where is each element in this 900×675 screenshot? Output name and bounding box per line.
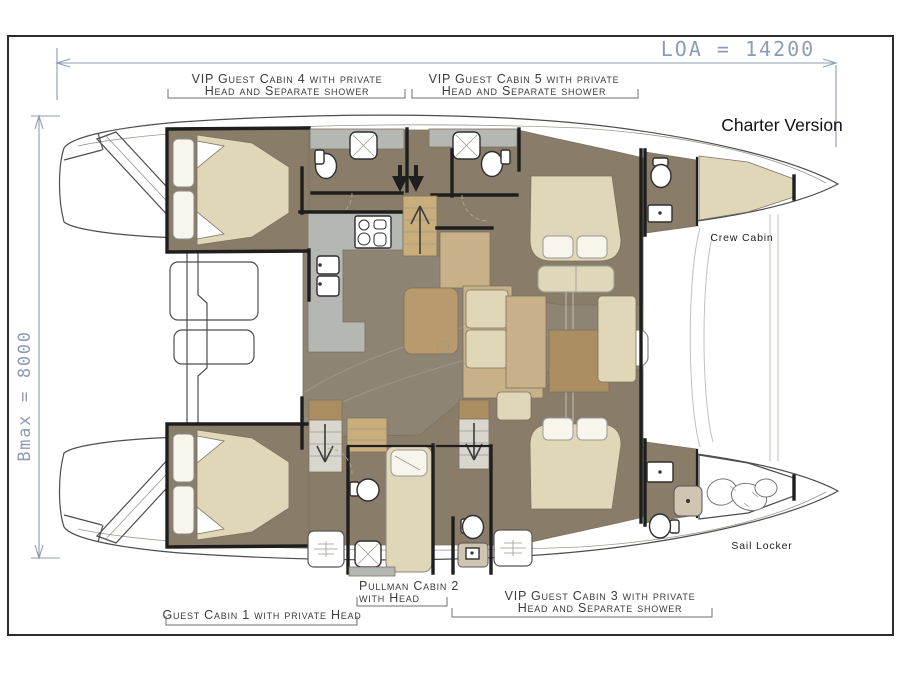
guest1-toilet: [357, 479, 379, 501]
pullman-toilet: [463, 516, 484, 539]
stairs-down-guest1: [309, 400, 342, 472]
wardrobe: [440, 232, 490, 288]
loa-dimension-label: LOA = 14200: [661, 37, 815, 61]
bmax-dimension-label: Bmax = 8000: [15, 330, 35, 461]
label-sail-locker: Sail Locker: [731, 540, 792, 552]
stairs-up-galley: [403, 196, 437, 256]
salon-table: [404, 288, 458, 354]
label-vip3-line2: Head and Separate shower: [518, 601, 682, 615]
catamaran-floorplan-drawing: LOA = 14200 Bmax = 8000: [0, 0, 900, 675]
label-vip5-line2: Head and Separate shower: [442, 84, 606, 98]
label-vip4-line2: Head and Separate shower: [205, 84, 369, 98]
charter-version-title: Charter Version: [721, 115, 843, 135]
label-pullman2-line2: with Head: [359, 591, 420, 605]
label-guest1: Guest Cabin 1 with private Head: [162, 608, 361, 622]
crew-toilet: [651, 165, 671, 188]
vip3-toilet: [650, 514, 671, 538]
stairs-down-vip3: [459, 400, 489, 469]
floorplan-page: LOA = 14200 Bmax = 8000: [0, 0, 900, 675]
label-crew-cabin: Crew Cabin: [710, 232, 773, 244]
vip5-toilet: [482, 152, 503, 177]
